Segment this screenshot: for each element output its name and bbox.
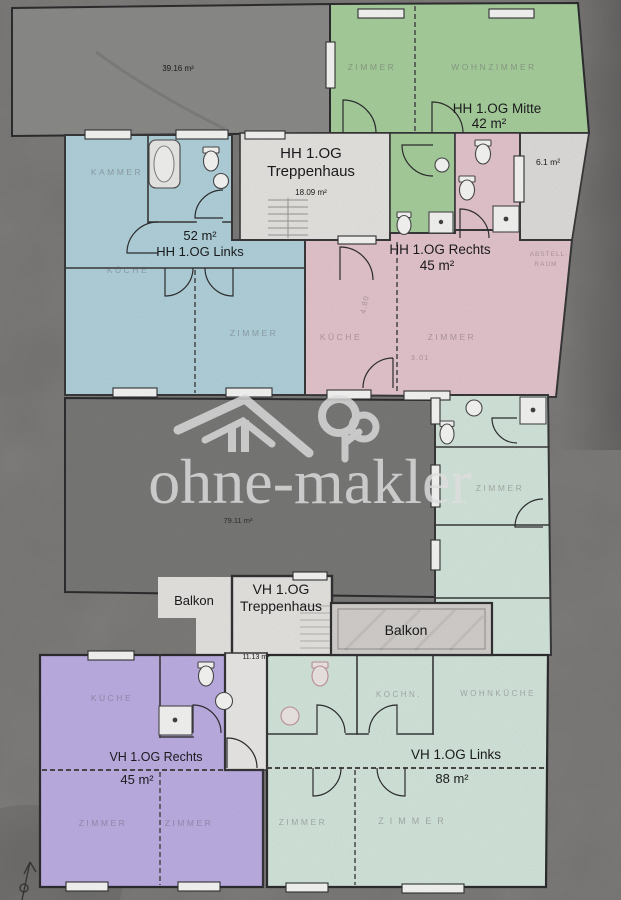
- floorplan-image: KAMMER ZIMMER WOHNZIMMER KÜCHE ZIMMER KÜ…: [0, 0, 621, 900]
- scan-grain: [0, 0, 621, 900]
